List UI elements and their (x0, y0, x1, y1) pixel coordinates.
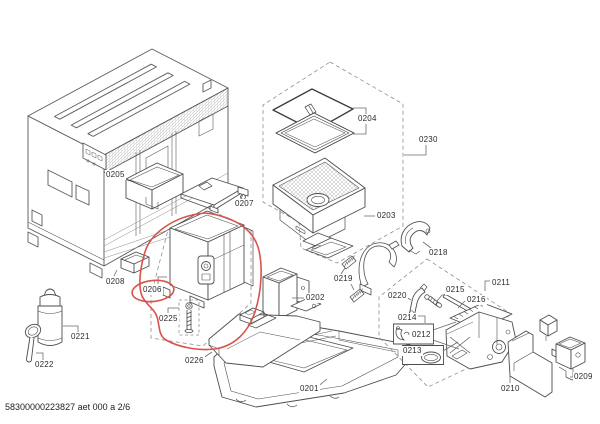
part-label-0202: 0202 (305, 293, 326, 303)
part-0215-grinder-bit (425, 295, 443, 309)
exploded-view-drawing (0, 0, 600, 424)
part-label-0216: 0216 (466, 295, 487, 305)
part-label-0225: 0225 (158, 314, 179, 324)
part-0225-valve (179, 300, 199, 335)
part-label-0207: 0207 (234, 199, 255, 209)
part-label-0222: 0222 (34, 360, 55, 370)
part-label-0210: 0210 (500, 384, 521, 394)
part-label-0226: 0226 (184, 356, 205, 366)
part-label-0206: 0206 (142, 285, 163, 295)
part-label-0214: 0214 (397, 313, 418, 323)
document-number: 58300000223827 aet 000 a 2/6 (5, 402, 130, 412)
part-0218-bracket (401, 222, 430, 254)
region-0230-boundary (263, 62, 403, 263)
part-0203-aroma-lid (303, 233, 353, 258)
part-label-0230: 0230 (418, 135, 439, 145)
part-0208-flap (121, 252, 149, 273)
part-label-0203: 0203 (376, 211, 397, 221)
part-0221-milk-container (38, 289, 62, 346)
part-0206-brew-unit (163, 211, 253, 308)
part-0216-grinder-assembly (443, 294, 516, 369)
part-label-0219: 0219 (333, 274, 354, 284)
part-label-0208: 0208 (105, 277, 126, 287)
part-0204-lid (273, 89, 354, 153)
part-label-0218: 0218 (428, 248, 449, 258)
part-label-0204: 0204 (357, 114, 378, 124)
part-label-0205: 0205 (105, 170, 126, 180)
part-label-0213: 0213 (402, 346, 423, 356)
parts-diagram-page: 0201 0202 0203 0204 0205 0206 0207 0208 … (0, 0, 600, 424)
part-0203-bean-container (273, 158, 365, 245)
part-label-0201: 0201 (299, 384, 320, 394)
part-label-0221: 0221 (70, 332, 91, 342)
part-label-0212: 0212 (411, 330, 432, 340)
part-label-0215: 0215 (445, 285, 466, 295)
part-label-0220: 0220 (387, 291, 408, 301)
part-label-0209: 0209 (573, 372, 594, 382)
part-label-0211: 0211 (491, 278, 511, 288)
